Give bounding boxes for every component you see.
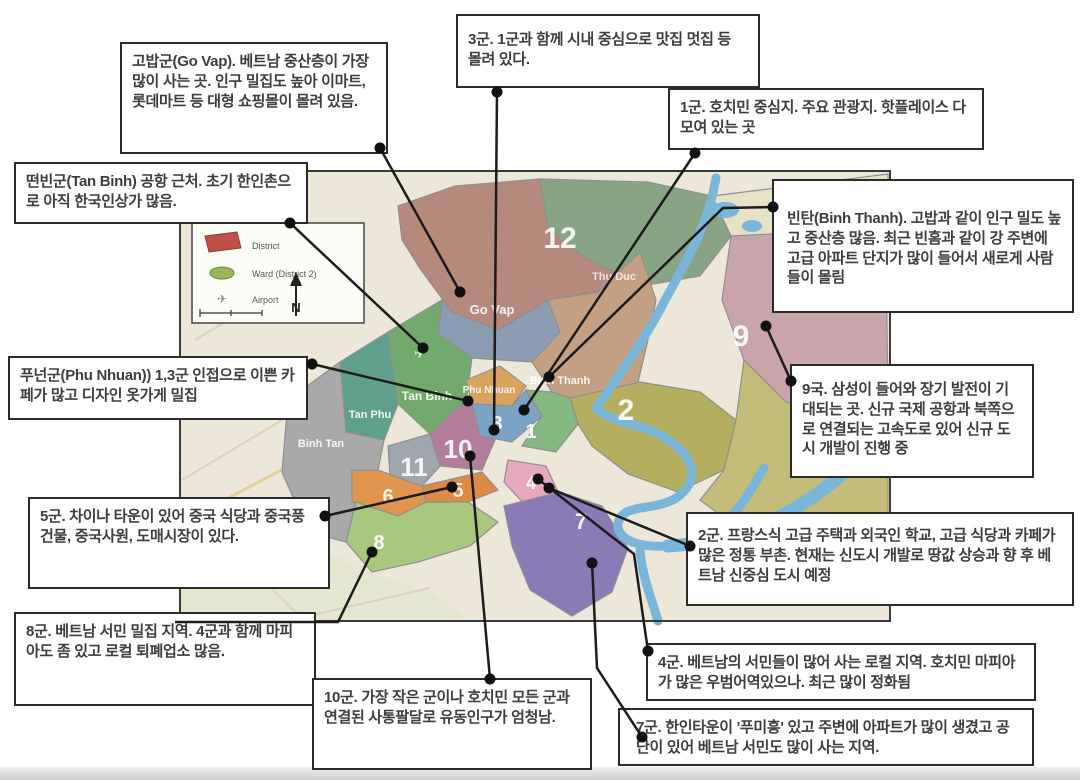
callout-district-7-text: 7군. 한인타운이 '푸미흥' 있고 주변에 아파트가 많이 생겼고 공단이 있… <box>636 719 1009 756</box>
legend-ward-swatch <box>210 267 234 279</box>
district-phu-nhuan-label: Phu Nhuan <box>463 385 516 396</box>
callout-go-vap-text: 고밥군(Go Vap). 베트남 중산층이 가장 많이 사는 곳. 인구 밀집도… <box>132 53 369 110</box>
legend-district-label: District <box>252 241 280 251</box>
district-11-label: 11 <box>400 452 428 482</box>
callout-district-8: 8군. 베트남 서민 밀집 지역. 4군과 함께 마피아도 좀 있고 로컬 퇴폐… <box>14 612 316 706</box>
legend-district-swatch <box>205 232 241 252</box>
callout-go-vap: 고밥군(Go Vap). 베트남 중산층이 가장 많이 사는 곳. 인구 밀집도… <box>120 42 388 154</box>
district-1-label: 1 <box>525 421 536 443</box>
callout-district-5: 5군. 차이나 타운이 있어 중국 식당과 중국풍 건물, 중국사원, 도매시장… <box>28 497 330 589</box>
callout-binh-thanh-text: 빈탄(Binh Thanh). 고밥과 같이 인구 밀도 높고 중산층 많음. … <box>787 210 1061 286</box>
district-binh-thanh-label: Binh Thanh <box>530 375 591 387</box>
district-go-vap-label: Go Vap <box>470 302 515 317</box>
callout-phu-nhuan: 푸넌군(Phu Nhuan)) 1,3군 인접으로 이쁜 카페가 많고 디자인 … <box>8 356 308 420</box>
map-legend: ✈ District Ward (District 2) Airport N <box>192 223 364 323</box>
callout-district-3-text: 3군. 1군과 함께 시내 중심으로 맛집 멋집 등 몰려 있다. <box>468 31 731 68</box>
callout-district-1: 1군. 호치민 중심지. 주요 관광지. 핫플레이스 다 모여 있는 곳 <box>668 88 984 150</box>
callout-binh-thanh: 빈탄(Binh Thanh). 고밥과 같이 인구 밀도 높고 중산층 많음. … <box>772 179 1074 313</box>
district-9-label: 9 <box>733 320 750 353</box>
callout-district-2: 2군. 프랑스식 고급 주택과 외국인 학교, 고급 식당과 카페가 많은 정통… <box>686 512 1074 606</box>
district-12-label: 12 <box>543 222 576 255</box>
district-tan-binh-label: Tan Binh <box>402 389 452 403</box>
annotated-district-map-page: { "callouts": { "go_vap": { "text": "고밥군… <box>0 0 1080 780</box>
callout-district-2-text: 2군. 프랑스식 고급 주택과 외국인 학교, 고급 식당과 카페가 많은 정통… <box>698 527 1055 584</box>
district-thu-duc-label: Thu Duc <box>592 271 636 283</box>
callout-district-9: 9국. 삼성이 들어와 장기 발전이 기대되는 곳. 신규 국제 공항과 북쪽으… <box>790 364 1034 478</box>
airport-icon: ✈ <box>414 345 426 361</box>
callout-district-10: 10군. 가장 작은 군이나 호치민 모든 군과 연결된 사통팔달로 유동인구가… <box>312 678 592 770</box>
callout-district-5-text: 5군. 차이나 타운이 있어 중국 식당과 중국풍 건물, 중국사원, 도매시장… <box>40 508 305 545</box>
district-2-label: 2 <box>618 394 635 427</box>
callout-district-7: 7군. 한인타운이 '푸미흥' 있고 주변에 아파트가 많이 생겼고 공단이 있… <box>618 708 1034 766</box>
callout-tan-binh-text: 떤빈군(Tan Binh) 공항 근처. 초기 한인촌으로 아직 한국인상가 많… <box>26 173 291 210</box>
district-tan-phu-label: Tan Phu <box>349 409 392 421</box>
district-7-label: 7 <box>575 509 587 534</box>
district-8-label: 8 <box>373 532 384 554</box>
district-binh-tan-label: Binh Tan <box>298 438 345 450</box>
callout-district-3: 3군. 1군과 함께 시내 중심으로 맛집 멋집 등 몰려 있다. <box>456 14 760 88</box>
callout-district-9-text: 9국. 삼성이 들어와 장기 발전이 기대되는 곳. 신규 국제 공항과 북쪽으… <box>802 381 1014 457</box>
district-6-label: 6 <box>382 486 393 508</box>
district-4-label: 4 <box>526 473 536 493</box>
compass-n-label: N <box>291 300 300 315</box>
callout-tan-binh: 떤빈군(Tan Binh) 공항 근처. 초기 한인촌으로 아직 한국인상가 많… <box>14 162 308 224</box>
callout-district-1-text: 1군. 호치민 중심지. 주요 관광지. 핫플레이스 다 모여 있는 곳 <box>680 99 966 136</box>
district-3-label: 3 <box>491 413 502 435</box>
district-10-label: 10 <box>444 434 473 464</box>
callout-district-4-text: 4군. 베트남의 서민들이 많어 사는 로컬 지역. 호치민 마피아가 많은 우… <box>658 654 1015 691</box>
callout-phu-nhuan-text: 푸넌군(Phu Nhuan)) 1,3군 인접으로 이쁜 카페가 많고 디자인 … <box>20 367 294 404</box>
district-5-label: 5 <box>452 480 463 502</box>
legend-airport-label: Airport <box>252 295 279 305</box>
callout-district-8-text: 8군. 베트남 서민 밀집 지역. 4군과 함께 마피아도 좀 있고 로컬 퇴폐… <box>26 623 293 660</box>
legend-airport-icon: ✈ <box>217 292 227 306</box>
river-lake <box>742 220 762 232</box>
callout-district-4: 4군. 베트남의 서민들이 많어 사는 로컬 지역. 호치민 마피아가 많은 우… <box>646 643 1036 701</box>
river-lake <box>711 202 739 218</box>
callout-district-10-text: 10군. 가장 작은 군이나 호치민 모든 군과 연결된 사통팔달로 유동인구가… <box>324 689 570 726</box>
legend-ward-label: Ward (District 2) <box>252 269 317 279</box>
